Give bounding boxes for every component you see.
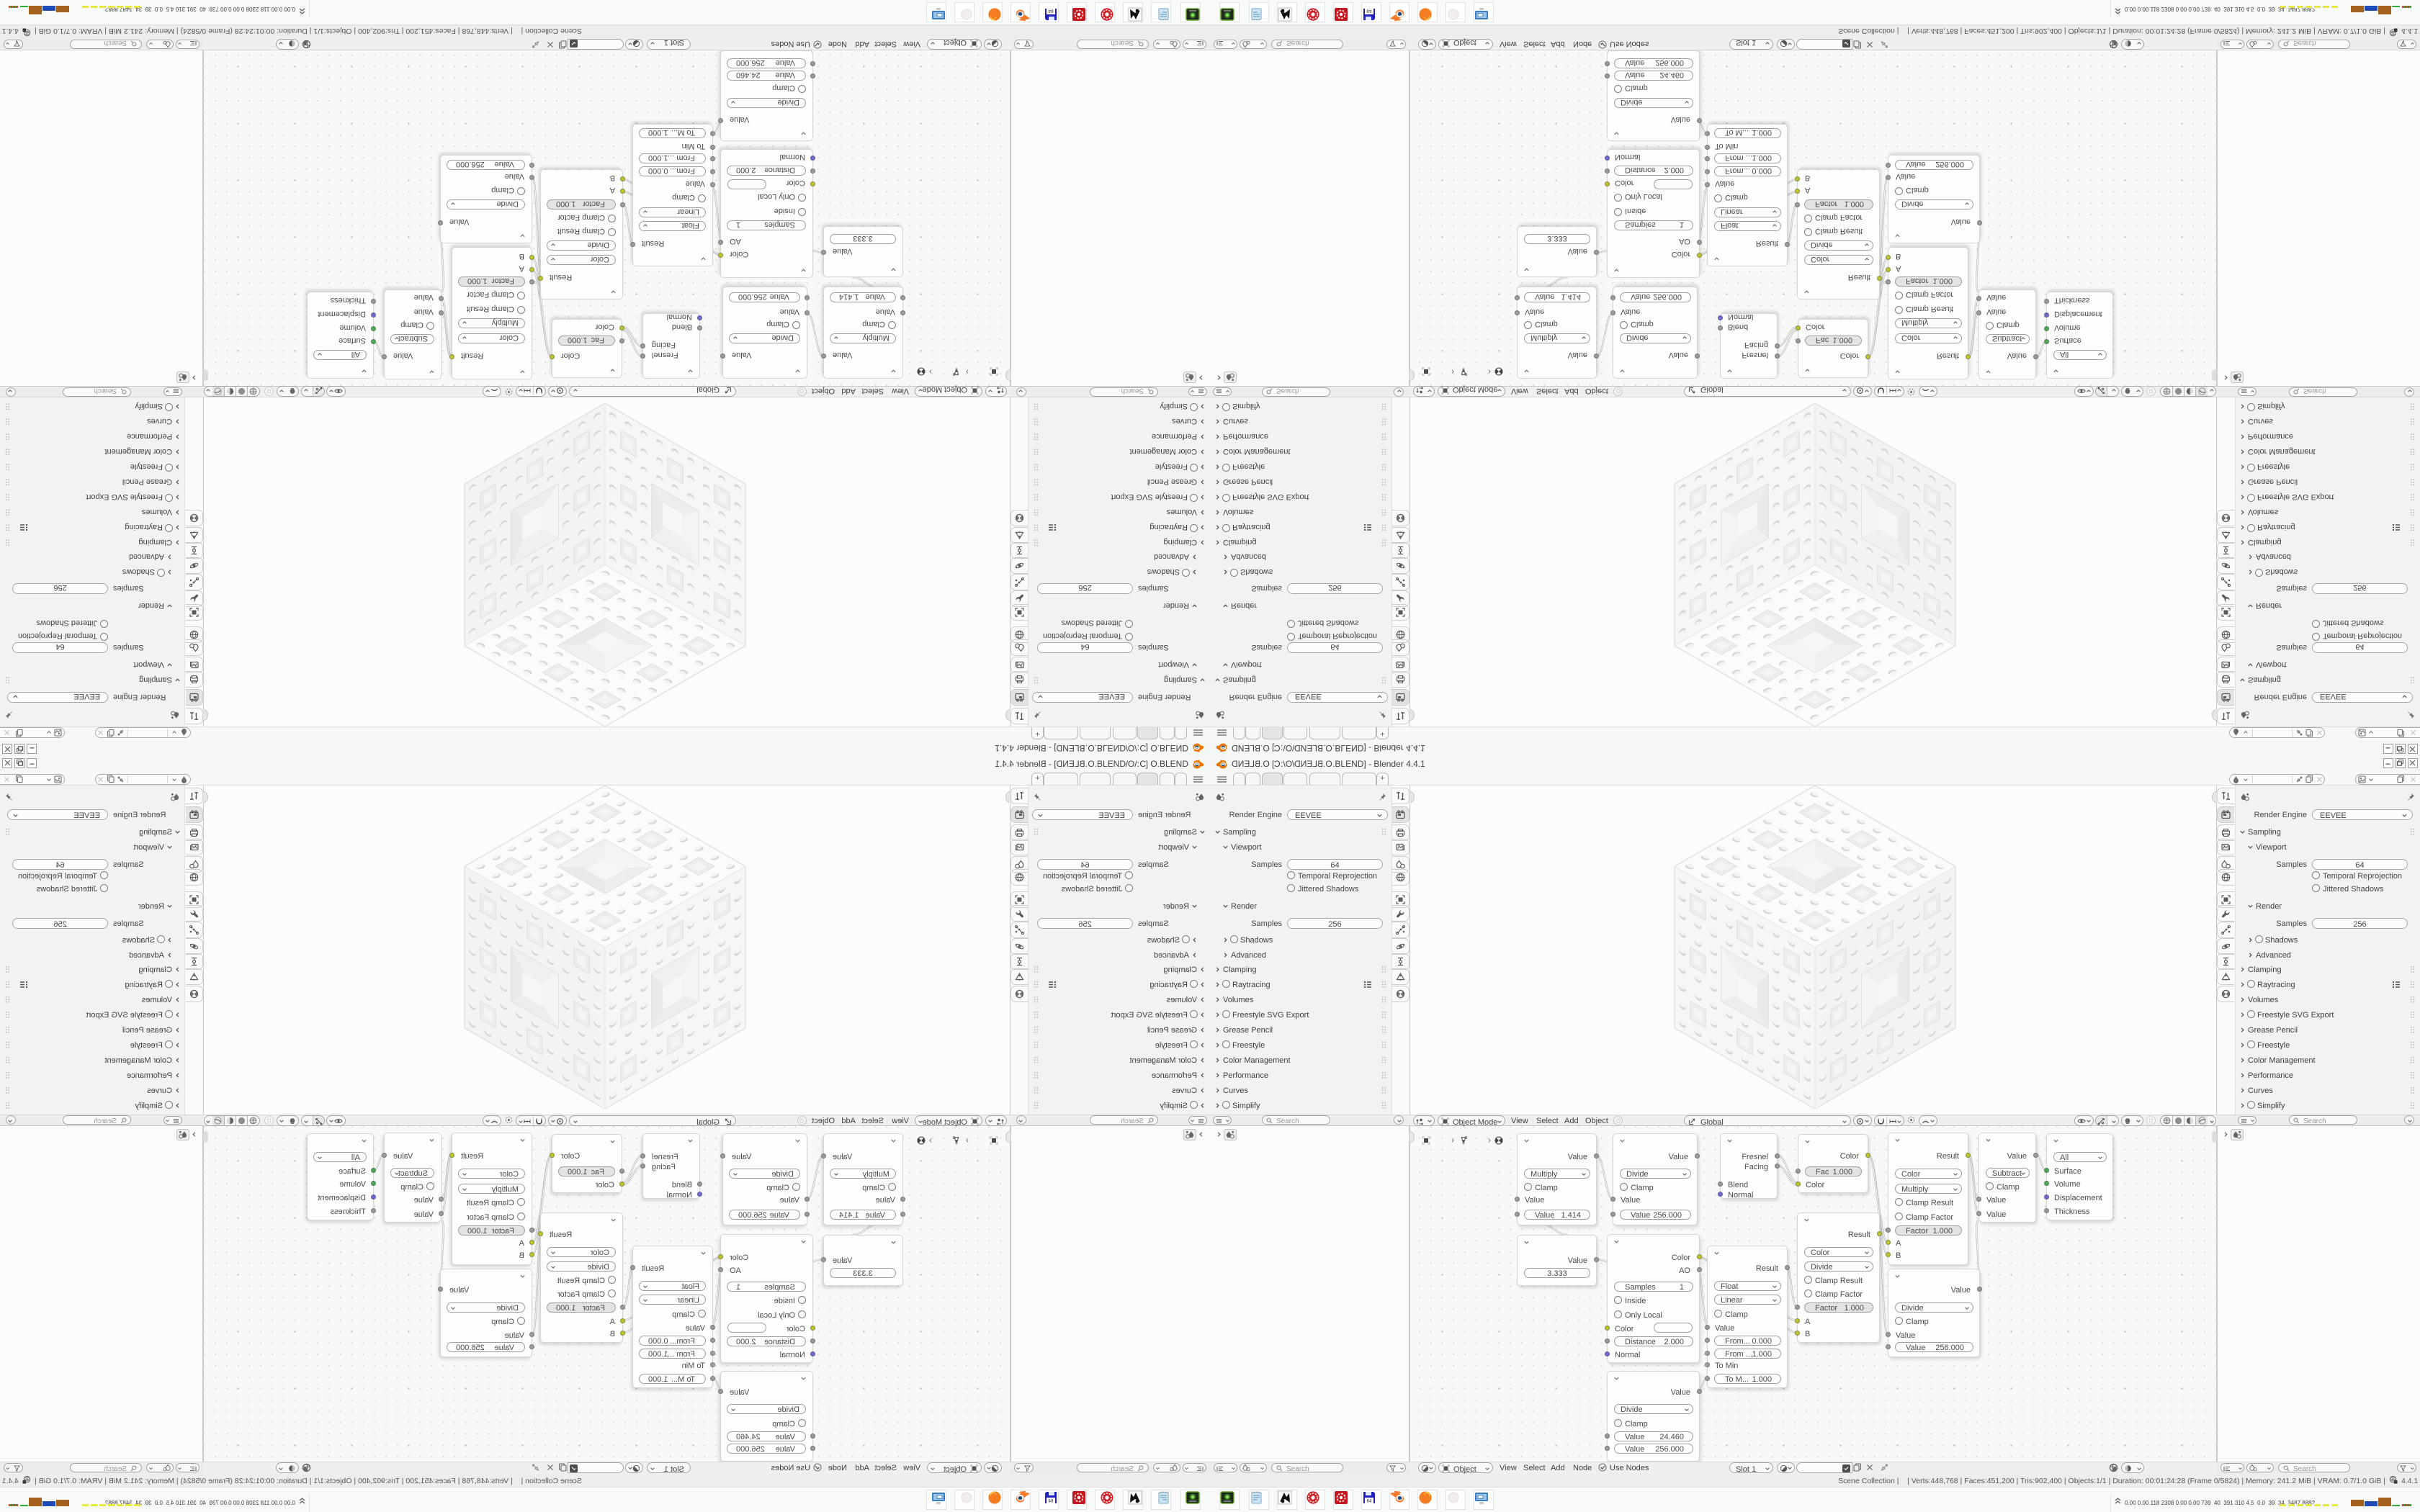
svg-text:64: 64 <box>1366 9 1372 14</box>
svg-text:64: 64 <box>1366 1499 1372 1504</box>
svg-text:64: 64 <box>1048 9 1054 14</box>
svg-text:64: 64 <box>1048 1499 1054 1504</box>
